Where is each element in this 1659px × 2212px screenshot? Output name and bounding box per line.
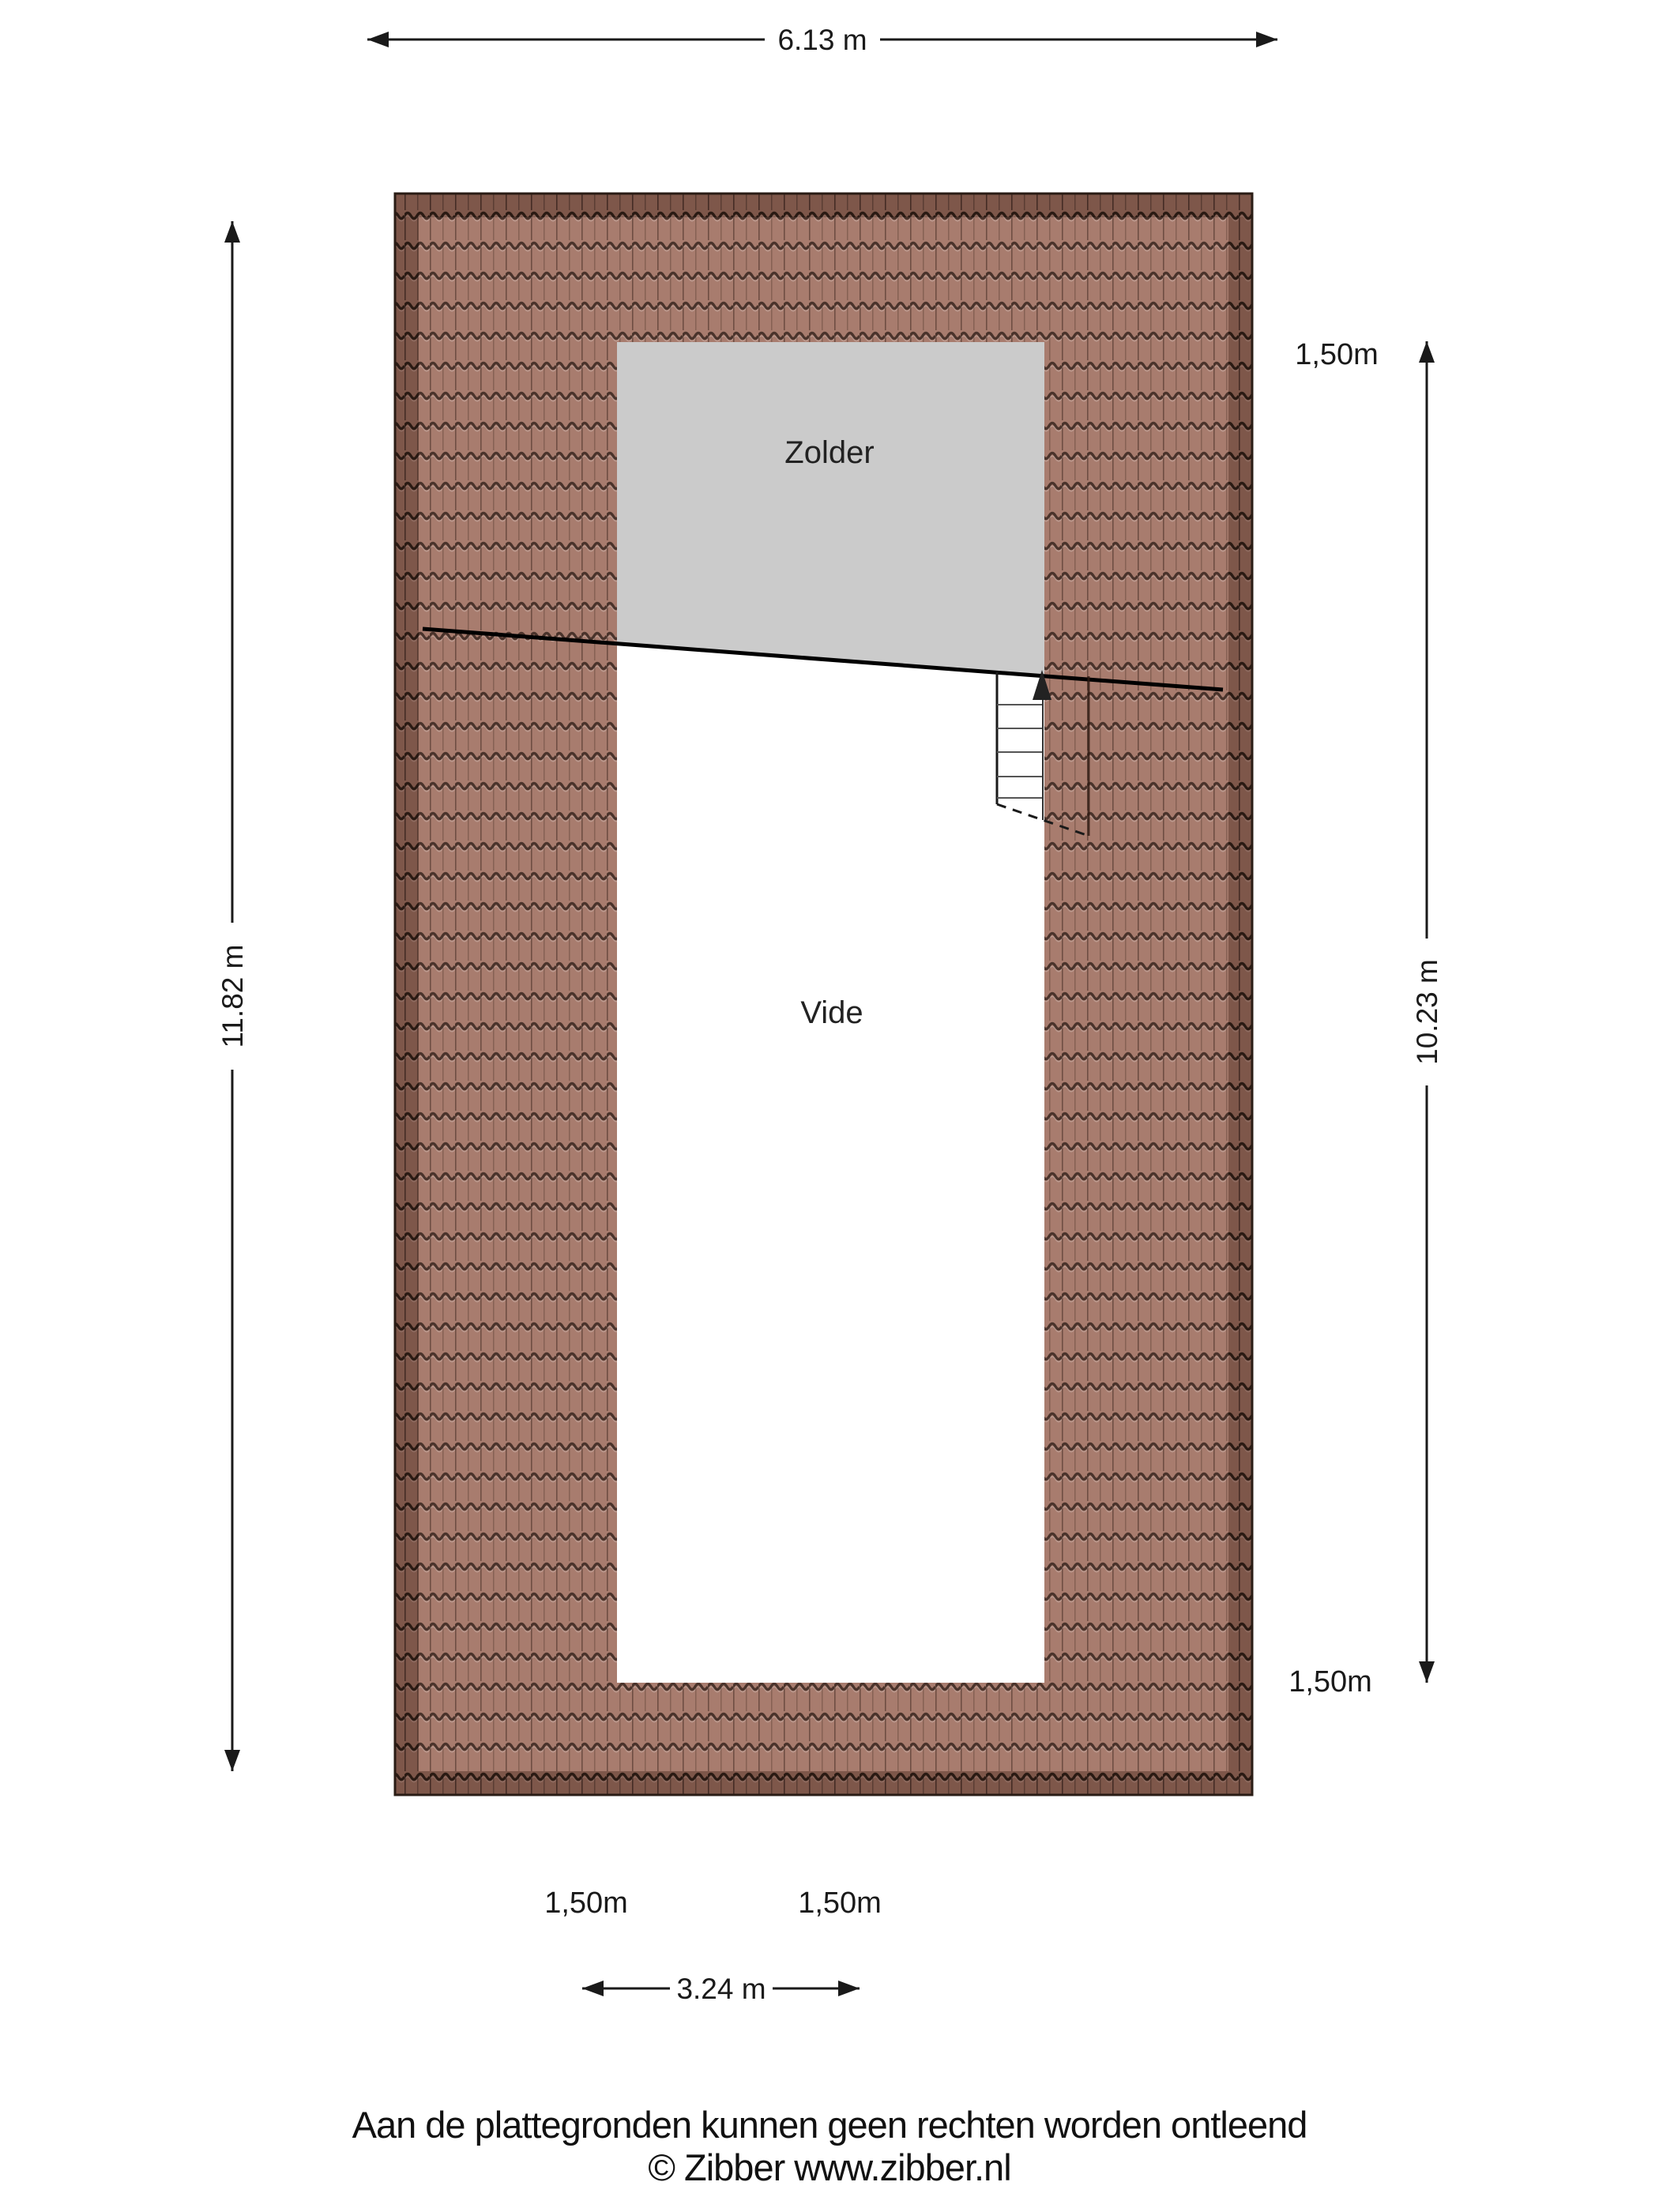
floorplan-canvas: 6.13 m 11.82 m 10.23 m 3.24 m 1,50m: [0, 0, 1659, 2212]
room-label-zolder: Zolder: [784, 435, 874, 470]
arrow-left-icon: [367, 32, 389, 47]
height-marker-bottom-right: 1,50m: [1288, 1665, 1372, 1698]
height-marker-below-right: 1,50m: [798, 1887, 882, 1920]
dimension-bottom-label: 3.24 m: [676, 1973, 766, 2005]
arrow-right-icon: [838, 1981, 860, 1996]
footer-copyright: © Zibber www.zibber.nl: [648, 2146, 1010, 2188]
height-marker-below-left: 1,50m: [544, 1887, 628, 1920]
arrow-left-icon: [582, 1981, 604, 1996]
dimension-bottom: 3.24 m: [582, 1969, 860, 2007]
floorplan-page: 6.13 m 11.82 m 10.23 m 3.24 m 1,50m: [0, 0, 1659, 2212]
dimension-top: 6.13 m: [367, 21, 1277, 58]
height-marker-top-right: 1,50m: [1295, 338, 1379, 371]
room-label-vide: Vide: [800, 995, 863, 1030]
arrow-right-icon: [1256, 32, 1277, 47]
dimension-right-label: 10.23 m: [1411, 959, 1443, 1065]
arrow-down-icon: [1419, 1661, 1435, 1683]
vide-polygon: [617, 644, 1044, 1683]
footer-disclaimer: Aan de plattegronden kunnen geen rechten…: [352, 2104, 1307, 2146]
arrow-down-icon: [224, 1750, 240, 1771]
dimension-left-label: 11.82 m: [216, 945, 249, 1048]
dimension-top-label: 6.13 m: [777, 24, 867, 56]
zolder-area: [617, 342, 1044, 676]
dimension-right: 10.23 m: [1406, 341, 1447, 1683]
zolder-polygon: [617, 342, 1044, 676]
arrow-up-icon: [224, 221, 240, 243]
vide-area: [617, 644, 1044, 1683]
dimension-left: 11.82 m: [212, 221, 253, 1771]
arrow-up-icon: [1419, 341, 1435, 363]
